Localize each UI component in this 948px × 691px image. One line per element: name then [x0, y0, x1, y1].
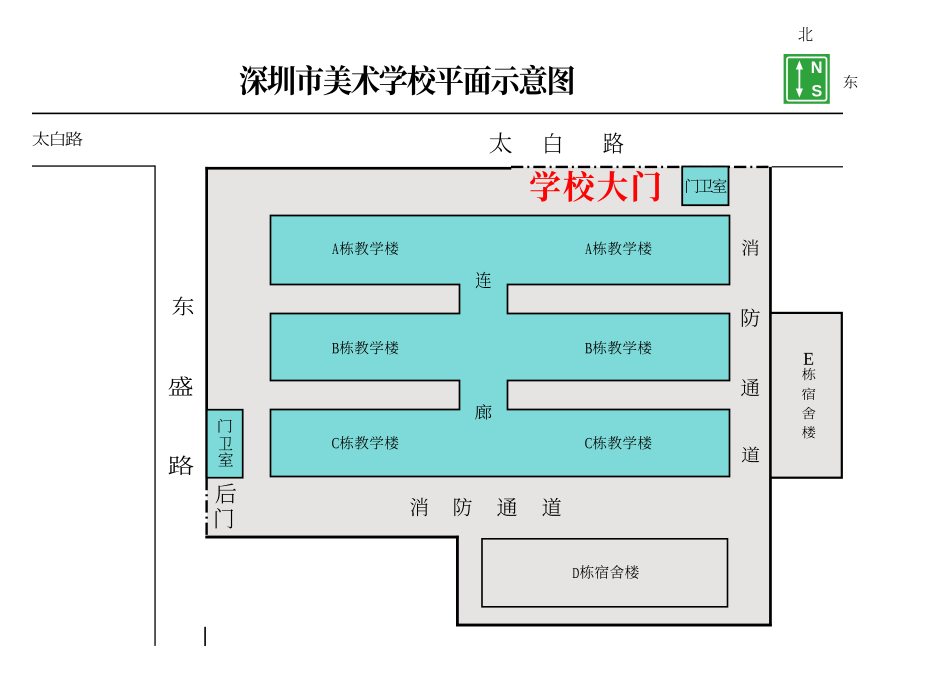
svg-text:N: N [811, 59, 823, 77]
svg-text:S: S [811, 83, 822, 101]
